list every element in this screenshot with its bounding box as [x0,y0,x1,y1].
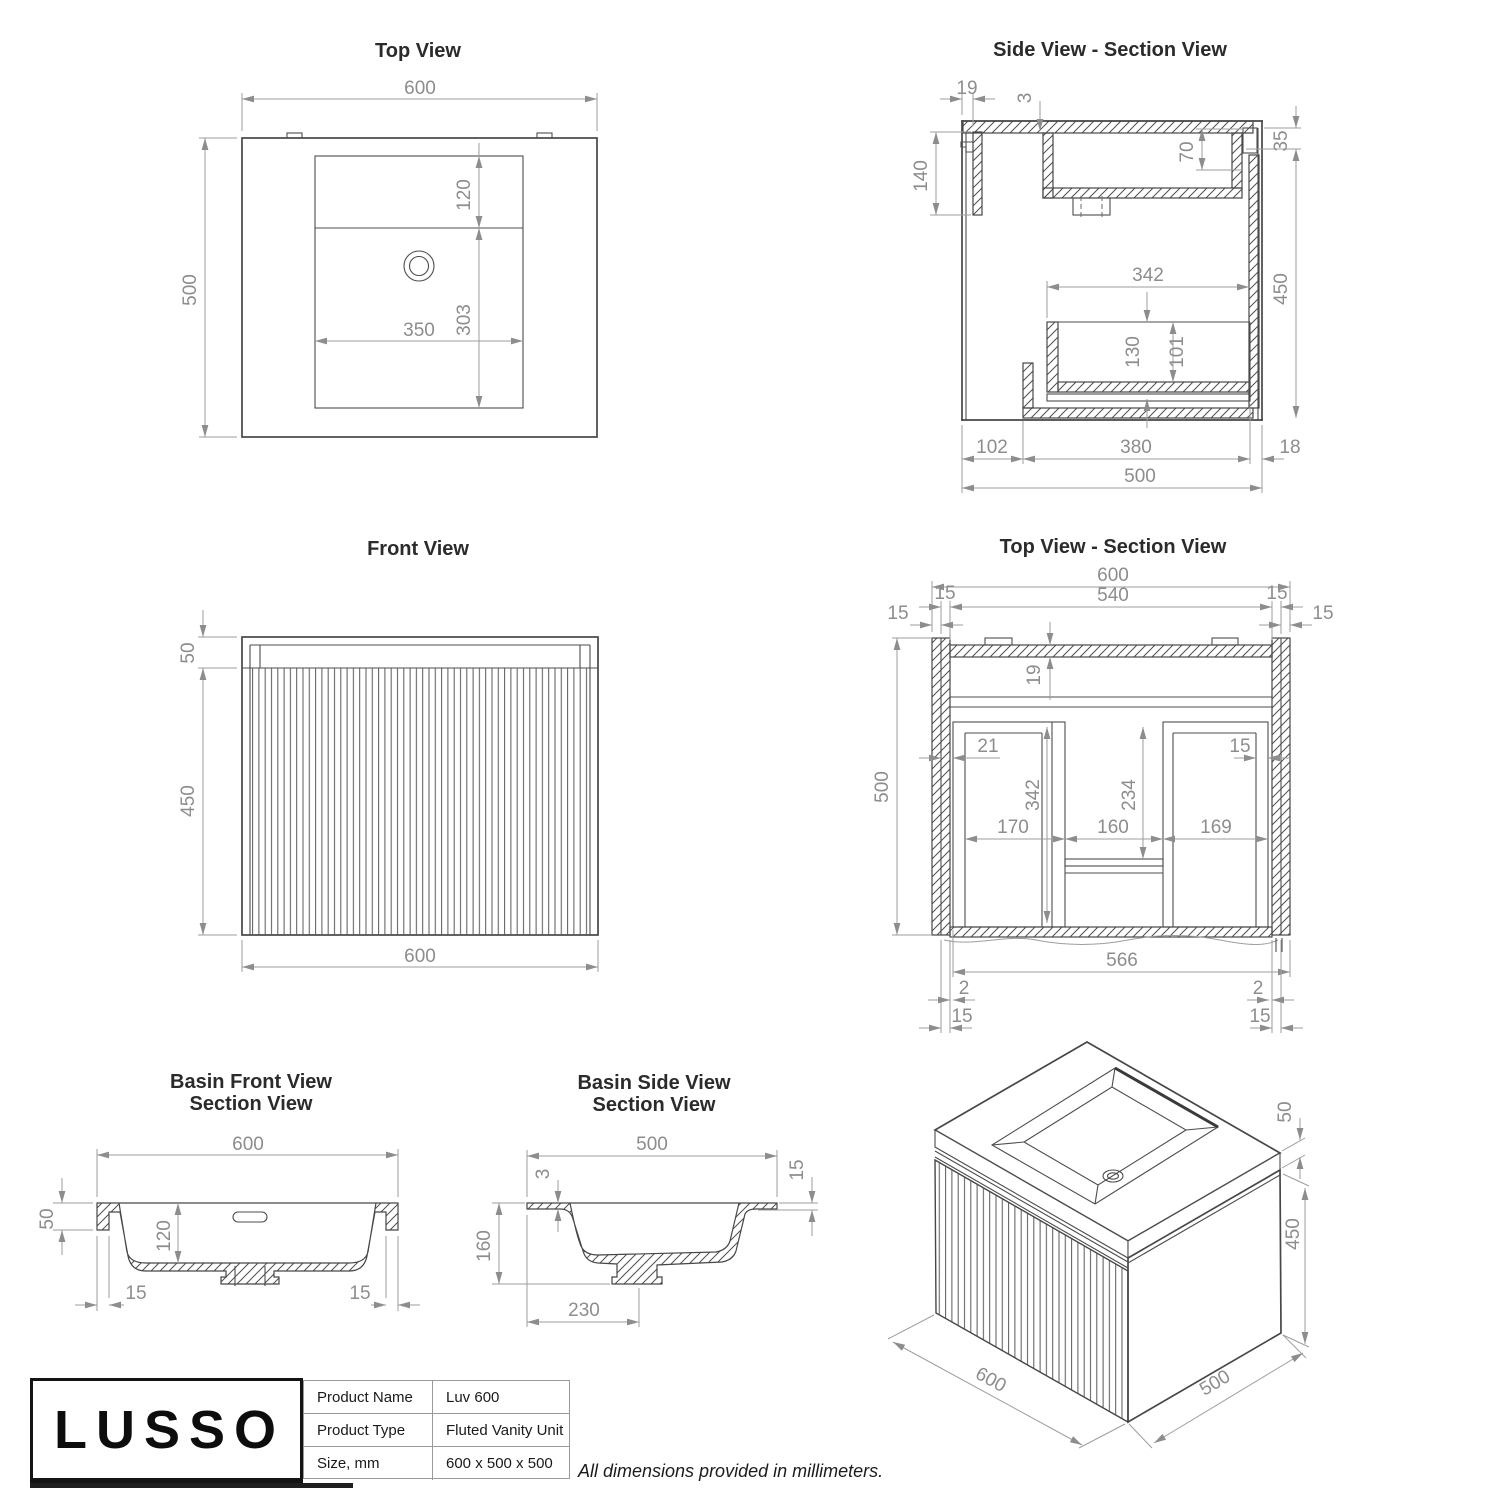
dim-ts-bl15: 15 [951,1006,972,1027]
dim-ts-mid-width: 160 [1097,817,1129,838]
dim-ts-tr-out: 15 [1312,603,1333,624]
basin-front-title-1: Basin Front View [170,1071,332,1093]
dim-overall-depth-side: 500 [1124,466,1156,487]
product-type-label: Product Type [304,1414,433,1446]
basin-side-dimensions: 500 3 15 160 230 [474,1134,818,1327]
side-section-title: Side View - Section View [993,39,1227,61]
dim-ts-width: 600 [1097,565,1129,586]
top-view-title: Top View [375,40,461,62]
hanging-rail-section [973,132,982,215]
dimensions-note: All dimensions provided in millimeters. [578,1461,883,1482]
dim-ts-tl-in: 15 [934,583,955,604]
basin-front-section-body [97,1203,398,1284]
dim-ts-inner-width: 566 [1106,950,1138,971]
basin-side-title-1: Basin Side View [577,1072,730,1094]
front-view-title: Front View [367,538,469,560]
dim-drawer-height: 130 [1123,336,1144,368]
dim-bs-top: 3 [533,1169,554,1180]
basin-recess [315,156,523,408]
bowl-rear-wall [1232,133,1242,188]
dim-bf-rim: 50 [37,1208,58,1229]
dim-top-depth: 500 [180,274,201,306]
product-name-label: Product Name [304,1381,433,1413]
clip-left [985,638,1012,645]
product-name-value: Luv 600 [433,1381,569,1413]
dim-body-height-front: 450 [178,785,199,817]
dim-bf-left: 15 [125,1283,146,1304]
dim-bs-height: 160 [474,1230,495,1262]
table-row: Product Name Luv 600 [304,1381,569,1414]
basin-side-title-2: Section View [592,1094,715,1116]
faucet-hole-inner [410,257,429,276]
dim-ts-depth: 500 [872,771,893,803]
counter-slab-section [963,121,1253,133]
basin-front-title-2: Section View [189,1093,312,1115]
dim-ts-tl-out: 15 [887,603,908,624]
table-row: Product Type Fluted Vanity Unit [304,1414,569,1447]
top-section-view: Top View - Section View 600 [872,536,1334,1033]
counter-section-strip [950,645,1272,657]
size-value: 600 x 500 x 500 [433,1447,569,1480]
dim-ts-runner-depth: 234 [1119,779,1140,811]
top-view-outline [242,138,597,437]
product-type-value: Fluted Vanity Unit [433,1414,569,1446]
dim-iso-width: 600 [972,1363,1010,1397]
dim-ts-inner: 540 [1097,585,1129,606]
dim-bowl-rear-depth: 70 [1177,141,1198,162]
bowl-bottom [1043,188,1242,198]
bottom-section-strip [950,927,1272,937]
dim-ts-right-width: 169 [1200,817,1232,838]
bottom-panel-section [1023,408,1253,418]
basin-front-view: Basin Front View Section View 600 50 120… [37,1071,420,1311]
dim-bf-bowl: 120 [154,1220,175,1252]
faucet-hole-icon [404,251,434,281]
clip-right [1212,638,1238,645]
dim-front-offset: 102 [976,437,1008,458]
dim-front-width: 600 [404,946,436,967]
dim-top-bowl-width: 350 [403,320,435,341]
sheet-crop-line [30,1483,353,1488]
dim-rail-height: 140 [911,160,932,192]
dim-ts-left-width: 170 [997,817,1029,838]
drain-icon [1073,198,1110,215]
dim-iso-counter: 50 [1275,1101,1296,1122]
dim-ts-br15: 15 [1249,1006,1270,1027]
dim-iso-height: 450 [1283,1218,1304,1250]
dim-ts-left-gap: 21 [977,736,998,757]
dim-bs-rear: 15 [787,1159,808,1180]
dim-top-gap: 3 [1015,93,1036,104]
brand-logo: LUSSO [48,1399,285,1461]
size-label: Size, mm [304,1447,433,1480]
dim-mid-depth: 380 [1120,437,1152,458]
basin-side-section-body [527,1203,777,1284]
top-section-title: Top View - Section View [1000,536,1227,558]
dim-ts-right-gap: 15 [1229,736,1250,757]
dim-body-height-side: 450 [1271,273,1292,305]
front-bottom-rail [1023,363,1033,408]
drawing-canvas: Top View 600 500 120 303 350 Side View - [0,0,1500,1500]
dim-top-width: 600 [404,78,436,99]
dim-top-splash: 120 [454,179,475,211]
dim-ts-tr-in: 15 [1266,583,1287,604]
dim-ts-br2: 2 [1253,978,1264,999]
dim-bs-drain: 230 [568,1300,600,1321]
dim-ts-drawer-depth: 342 [1023,779,1044,811]
top-view: Top View 600 500 120 303 350 [180,40,597,437]
dim-ts-counter: 19 [1024,664,1045,685]
fluted-door-panel [250,668,590,935]
title-block-table: Product Name Luv 600 Product Type Fluted… [303,1380,570,1479]
basin-side-view: Basin Side View Section View 500 3 15 16… [474,1072,818,1327]
dim-drawer-inner-height: 101 [1167,336,1188,368]
dim-back-step: 35 [1271,130,1292,151]
drawer-runner [1047,394,1250,401]
dim-bs-depth: 500 [636,1134,668,1155]
center-bridge [1065,859,1163,866]
dim-door-thickness: 19 [956,78,977,99]
isometric-view: 50 450 600 500 [888,1042,1309,1448]
dim-bf-width: 600 [232,1134,264,1155]
dim-top-bowl-depth: 303 [454,304,475,336]
dim-bf-right: 15 [349,1283,370,1304]
overflow-slot-icon [233,1212,267,1222]
technical-drawing-sheet: Top View 600 500 120 303 350 Side View - [0,0,1500,1500]
brand-logo-cell: LUSSO [30,1378,303,1483]
dim-interior-width: 342 [1132,265,1164,286]
drawer-front-section [1047,322,1058,392]
table-row: Size, mm 600 x 500 x 500 [304,1447,569,1480]
dim-counter-height: 50 [178,642,199,663]
dim-back-gap: 18 [1279,437,1300,458]
side-section-view: Side View - Section View 19 [911,39,1301,493]
dim-ts-bl2: 2 [959,978,970,999]
front-view: Front View 50 450 600 [178,538,598,972]
drawer-bottom-section [1058,382,1250,392]
